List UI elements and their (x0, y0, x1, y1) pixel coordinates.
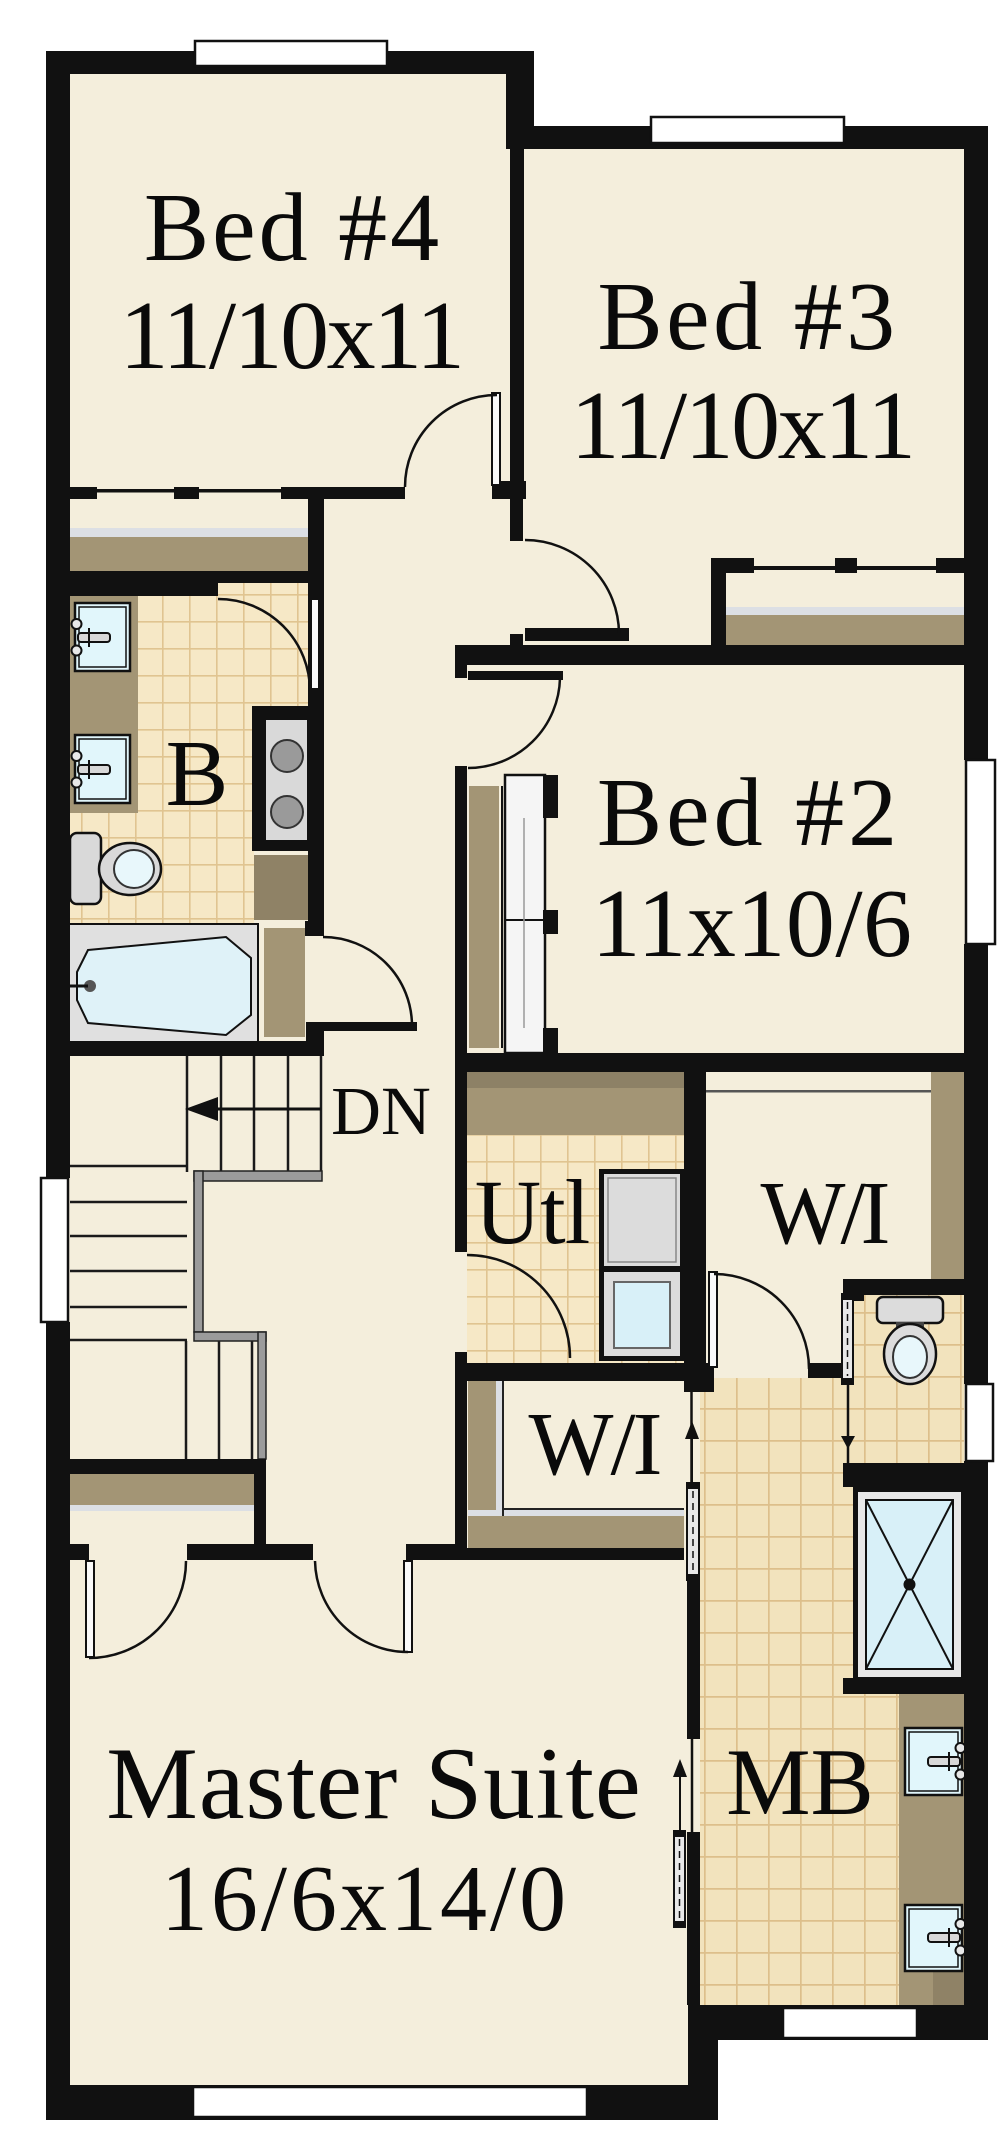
svg-text:B: B (166, 722, 229, 826)
svg-text:11x10/6: 11x10/6 (591, 870, 912, 978)
svg-text:16/6x14/0: 16/6x14/0 (161, 1847, 569, 1951)
svg-text:DN: DN (331, 1073, 431, 1149)
svg-text:11/10x11: 11/10x11 (120, 282, 463, 390)
svg-text:Master Suite: Master Suite (106, 1727, 642, 1841)
svg-text:Bed #3: Bed #3 (597, 263, 898, 371)
svg-text:Bed #4: Bed #4 (144, 174, 442, 282)
svg-text:11/10x11: 11/10x11 (571, 372, 914, 480)
svg-text:Bed #2: Bed #2 (597, 759, 901, 867)
svg-text:Utl: Utl (475, 1161, 590, 1263)
svg-text:W/I: W/I (761, 1164, 888, 1263)
svg-text:W/I: W/I (529, 1395, 660, 1494)
svg-text:MB: MB (726, 1729, 874, 1835)
